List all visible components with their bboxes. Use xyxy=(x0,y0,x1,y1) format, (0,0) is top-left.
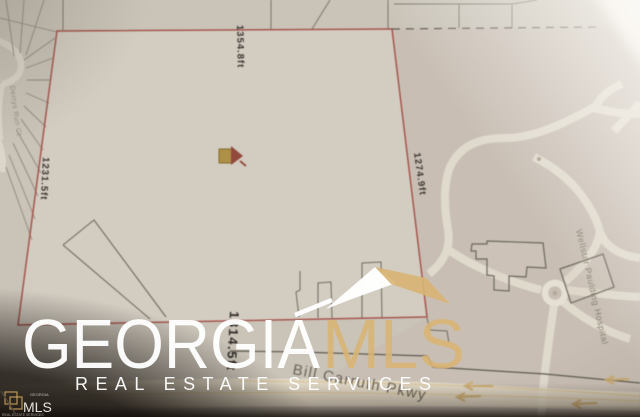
svg-text:REAL ESTATE SERVICES: REAL ESTATE SERVICES xyxy=(2,413,44,417)
svg-text:GEORGIA: GEORGIA xyxy=(30,392,49,397)
svg-text:GEORGIA: GEORGIA xyxy=(22,305,320,383)
svg-text:MLS: MLS xyxy=(322,305,465,383)
